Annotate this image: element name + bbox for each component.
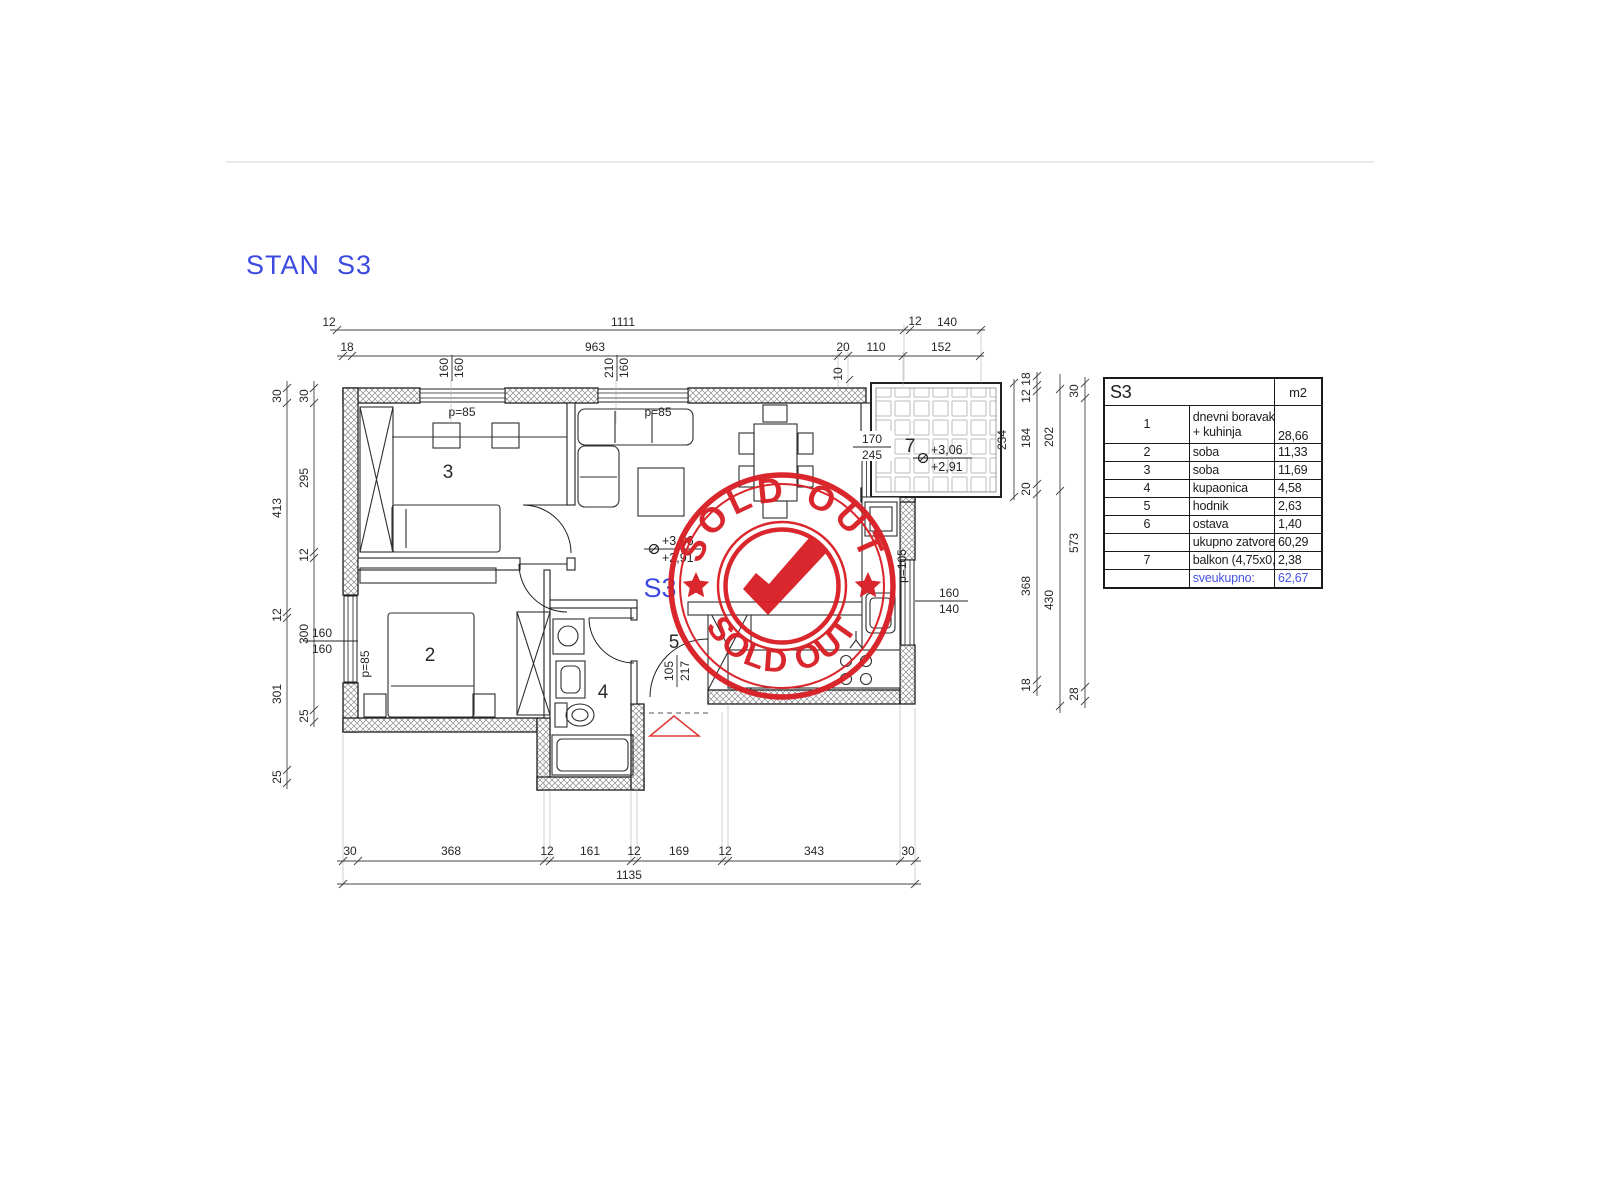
row-name-line2: + kuhinja [1193, 425, 1271, 439]
dim-label: 152 [931, 340, 951, 354]
dim-label: 963 [585, 340, 605, 354]
door-arc-room3 [523, 505, 571, 553]
dim-label: 25 [297, 709, 311, 723]
table-row: 6 ostava 1,40 [1104, 516, 1322, 534]
door-dim: 170 [862, 432, 882, 446]
room-label-3: 3 [443, 462, 454, 483]
page: { "page": { "title": "STAN S3" }, "color… [0, 0, 1600, 1180]
table-area-header: m2 [1275, 378, 1323, 406]
level-value: +3,06 [931, 443, 963, 457]
window-dim: 160 [437, 358, 451, 378]
room-label-5: 5 [669, 632, 680, 653]
dim-label: 12 [297, 548, 311, 562]
window-living [598, 389, 688, 402]
dim-label: 184 [1019, 428, 1033, 448]
window-dim: 140 [939, 602, 959, 616]
dim-label: 12 [627, 844, 641, 858]
area-table: S3 m2 1 dnevni boravak+blag.+ kuhinja 28… [1103, 377, 1323, 589]
door-dim: 105 [662, 661, 676, 681]
window-room2 [344, 596, 357, 682]
row-value: 28,66 [1275, 406, 1323, 444]
row-value: 2,38 [1275, 552, 1323, 570]
dim-label: 140 [937, 315, 957, 329]
furniture-bathroom [552, 619, 633, 775]
dim-label: 18 [1019, 372, 1033, 386]
row-num: 2 [1104, 444, 1189, 462]
row-num: 3 [1104, 462, 1189, 480]
door-arc-bath [589, 618, 634, 663]
page-divider [226, 161, 1374, 163]
sofa [578, 409, 693, 445]
row-name: hodnik [1189, 498, 1274, 516]
star-icon [683, 572, 710, 597]
balcony-tiles [876, 388, 996, 492]
row-value: 1,40 [1275, 516, 1323, 534]
dim-label: 573 [1067, 533, 1081, 553]
dim-label: 12 [322, 315, 336, 329]
table-row: 4 kupaonica 4,58 [1104, 480, 1322, 498]
table-row: 3 soba 11,69 [1104, 462, 1322, 480]
window-dim: 160 [312, 626, 332, 640]
dim-label: 161 [580, 844, 600, 858]
dim-label: 30 [270, 389, 284, 403]
window-room3 [420, 389, 505, 402]
row-name: soba [1189, 462, 1274, 480]
row-name: balkon (4,75x0,50) [1189, 552, 1274, 570]
dim-label: 343 [804, 844, 824, 858]
dim-label: 25 [270, 770, 284, 784]
dim-label: 202 [1042, 427, 1056, 447]
room-label-2: 2 [425, 645, 436, 666]
row-value: 60,29 [1275, 534, 1323, 552]
dim-label: 1135 [616, 868, 642, 882]
dim-label: 18 [1019, 678, 1033, 692]
dim-label: 368 [1019, 576, 1033, 596]
dim-label: 20 [1019, 482, 1033, 496]
row-value: 4,58 [1275, 480, 1323, 498]
table-row: 2 soba 11,33 [1104, 444, 1322, 462]
table-row: 5 hodnik 2,63 [1104, 498, 1322, 516]
row-num [1104, 534, 1189, 552]
row-num: 5 [1104, 498, 1189, 516]
floor-plan: 12 1111 12 140 18 963 20 110 152 30 413 … [270, 300, 1100, 900]
dim-label: 413 [270, 498, 284, 518]
entry-marker-triangle [650, 716, 699, 736]
row-num: 4 [1104, 480, 1189, 498]
row-num [1104, 570, 1189, 589]
dim-label: 12 [908, 314, 922, 328]
stub-dim: 10 [831, 367, 845, 381]
exterior-walls [343, 388, 915, 790]
row-value: 2,63 [1275, 498, 1323, 516]
room-label-4: 4 [598, 682, 609, 703]
bed [392, 505, 500, 552]
level-value: +2,91 [931, 460, 963, 474]
parapet-label: p=85 [358, 650, 372, 677]
dim-label: 30 [297, 389, 311, 403]
bathtub [552, 735, 633, 775]
dim-label: 12 [718, 844, 732, 858]
dim-label: 12 [540, 844, 554, 858]
dim-label: 30 [343, 844, 357, 858]
dim-label: 368 [441, 844, 461, 858]
dim-label: 30 [901, 844, 915, 858]
row-name: sveukupno: [1189, 570, 1274, 589]
dim-label: 295 [297, 468, 311, 488]
dim-label: 430 [1042, 590, 1056, 610]
dim-label: 169 [669, 844, 689, 858]
dim-label: 1111 [611, 315, 635, 329]
table-row-subtotal: ukupno zatvoreno: 60,29 [1104, 534, 1322, 552]
row-num: 1 [1104, 406, 1189, 444]
row-name: dnevni boravak+blag.+ kuhinja [1189, 406, 1274, 444]
row-value: 11,33 [1275, 444, 1323, 462]
parapet-label: p=105 [895, 549, 909, 583]
row-num: 7 [1104, 552, 1189, 570]
row-name: ukupno zatvoreno: [1189, 534, 1274, 552]
sold-out-stamp: SOLD OUT SOLD OUT [671, 470, 893, 697]
dim-label: 18 [340, 340, 354, 354]
room-label-7: 7 [905, 436, 916, 457]
parapet-label: p=85 [448, 405, 475, 419]
window-dim: 210 [602, 358, 616, 378]
dim-label: 20 [836, 340, 850, 354]
row-name-line1: dnevni boravak+blag. [1193, 410, 1271, 424]
window-dim: 160 [452, 358, 466, 378]
table-unit-header: S3 [1104, 378, 1275, 406]
furniture-room2 [360, 568, 550, 717]
table-row: 1 dnevni boravak+blag.+ kuhinja 28,66 [1104, 406, 1322, 444]
door-dim: 245 [862, 448, 882, 462]
dim-label: 301 [270, 684, 284, 704]
dim-label: 30 [1067, 384, 1081, 398]
door-dim: 217 [678, 661, 692, 681]
stamp-text-top: SOLD OUT [671, 470, 892, 568]
row-value: 11,69 [1275, 462, 1323, 480]
dim-label: 12 [270, 608, 284, 622]
window-dim: 160 [617, 358, 631, 378]
furniture-room3 [360, 407, 567, 552]
table-row-grand-total: sveukupno: 62,67 [1104, 570, 1322, 589]
row-name: soba [1189, 444, 1274, 462]
row-name: ostava [1189, 516, 1274, 534]
row-value: 62,67 [1275, 570, 1323, 589]
table-header: S3 m2 [1104, 378, 1322, 406]
coffee-table [638, 468, 684, 516]
dim-label: 12 [1019, 389, 1033, 403]
toilet [555, 703, 567, 727]
parapet-label: p=85 [644, 405, 671, 419]
row-name: kupaonica [1189, 480, 1274, 498]
dim-label: 28 [1067, 687, 1081, 701]
window-dim: 160 [939, 586, 959, 600]
table-row: 7 balkon (4,75x0,50) 2,38 [1104, 552, 1322, 570]
dim-label: 110 [866, 340, 885, 354]
row-num: 6 [1104, 516, 1189, 534]
dim-label: 234 [995, 430, 1009, 450]
page-title: STAN S3 [246, 250, 372, 281]
window-dim: 160 [312, 642, 332, 656]
